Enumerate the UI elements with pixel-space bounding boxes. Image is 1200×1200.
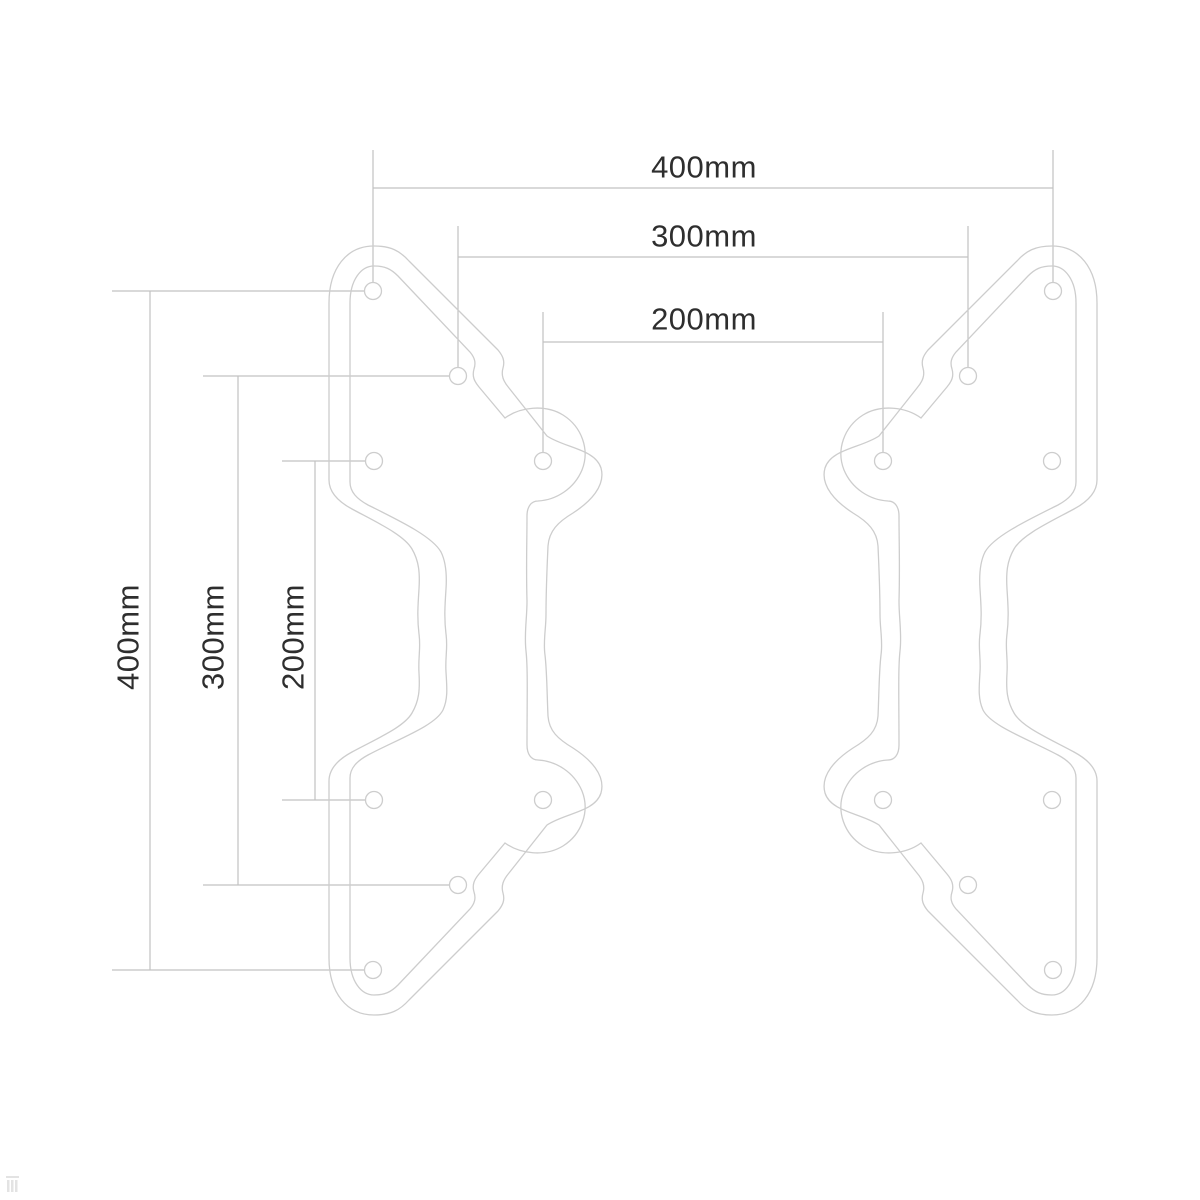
bracket-plate-right — [824, 246, 1097, 1015]
dimension-lines — [112, 150, 1053, 970]
dimension-label-horizontal-400mm: 400mm — [651, 152, 757, 183]
bracket-plate-left — [329, 246, 602, 1015]
dimension-label-horizontal-200mm: 200mm — [651, 304, 757, 335]
drawing-canvas — [0, 0, 1200, 1200]
dim-vertical-300mm — [203, 376, 458, 885]
watermark-icon — [6, 1176, 19, 1192]
dimension-label-horizontal-300mm: 300mm — [651, 221, 757, 252]
dimension-label-vertical-400mm: 400mm — [113, 584, 144, 690]
dimension-label-vertical-200mm: 200mm — [278, 584, 309, 690]
technical-drawing-page: 400mm 300mm 200mm 400mm 300mm 200mm — [0, 0, 1200, 1200]
dim-vertical-400mm — [112, 291, 373, 970]
dimension-label-vertical-300mm: 300mm — [198, 584, 229, 690]
